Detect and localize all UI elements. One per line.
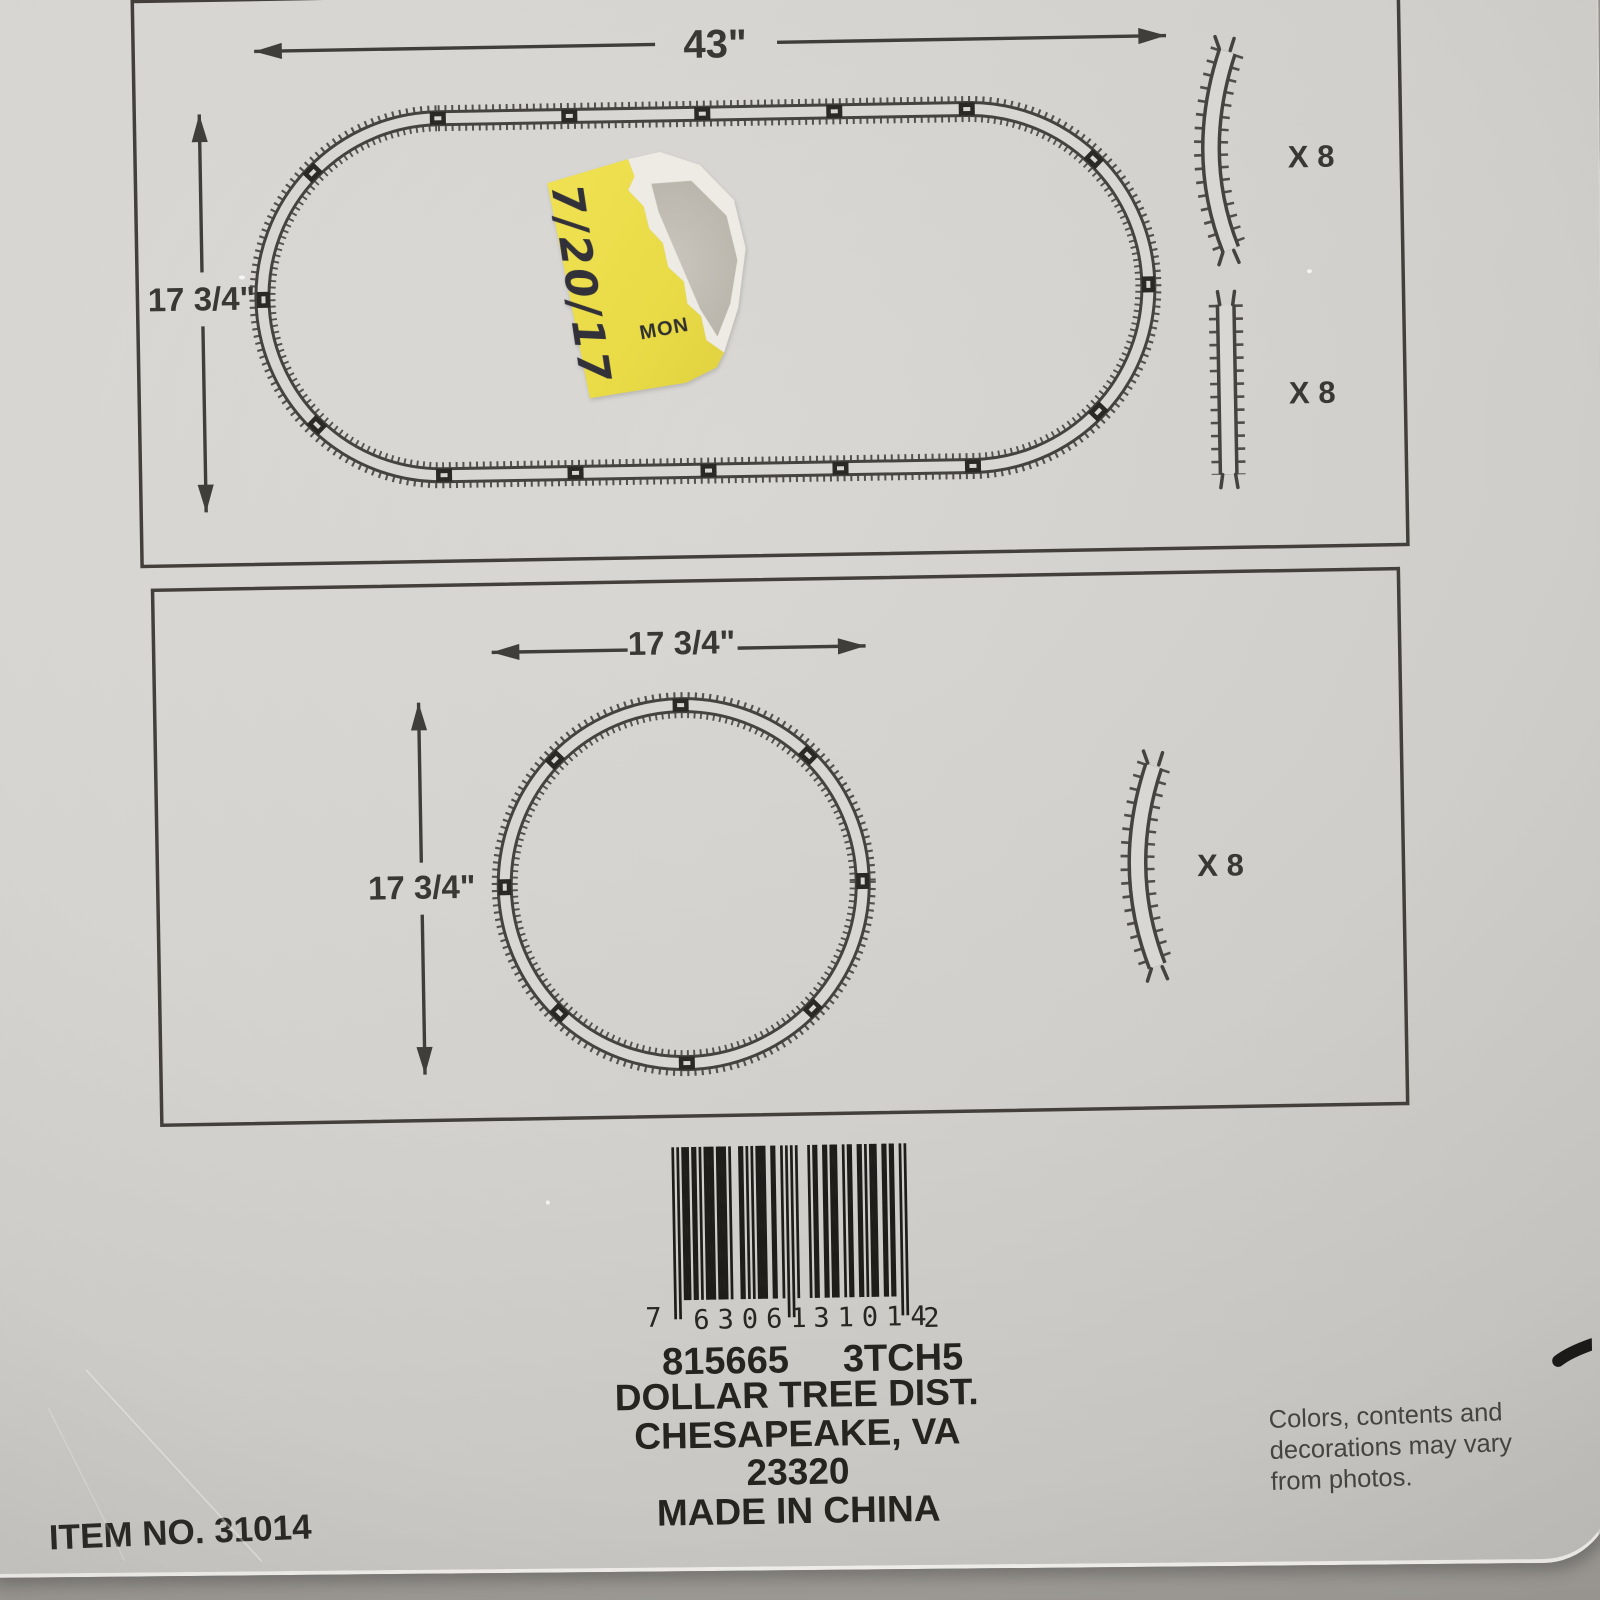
curve-qty-label-1: X 8 [1261,138,1362,176]
origin-line: MADE IN CHINA [592,1488,1005,1534]
curved-section-piece-2 [1135,751,1167,981]
upc-group1: 63061 [693,1303,815,1336]
side-panel-corner-mark [1558,1344,1592,1361]
straight-section-piece [1217,291,1237,487]
price-sticker: 7/20/17 MON [526,147,762,405]
oval-height-label: 17 3/4" [131,279,272,319]
upc-left-digit: 7 [645,1303,662,1334]
curved-section-piece-1 [1209,36,1239,264]
straight-qty-label: X 8 [1262,374,1363,412]
upc-right-digit: 2 [923,1303,940,1334]
dust-speck [546,1201,550,1205]
distributor-city: CHESAPEAKE, VA 23320 [591,1411,1004,1495]
dust-speck [239,275,245,279]
barcode [671,1143,909,1319]
curve-qty-label-2: X 8 [1170,847,1271,885]
cardboard-card: 43" 17 3/4" X 8 X 8 17 3/4" 17 3/4" X 8 … [0,0,1600,1578]
dust-speck [1307,269,1312,273]
oval-width-label: 43" [665,22,766,69]
upc-group2: 31014 [813,1301,935,1334]
distributor-block: DOLLAR TREE DIST. CHESAPEAKE, VA 23320 M… [590,1373,1005,1534]
printed-artwork: 43" 17 3/4" X 8 X 8 17 3/4" 17 3/4" X 8 … [0,0,1600,1580]
circle-width-label: 17 3/4" [601,623,762,664]
disclaimer-text: Colors, contents and decorations may var… [1268,1396,1531,1498]
circle-height-label: 17 3/4" [341,867,502,908]
package-back-photo: 43" 17 3/4" X 8 X 8 17 3/4" 17 3/4" X 8 … [0,0,1600,1600]
